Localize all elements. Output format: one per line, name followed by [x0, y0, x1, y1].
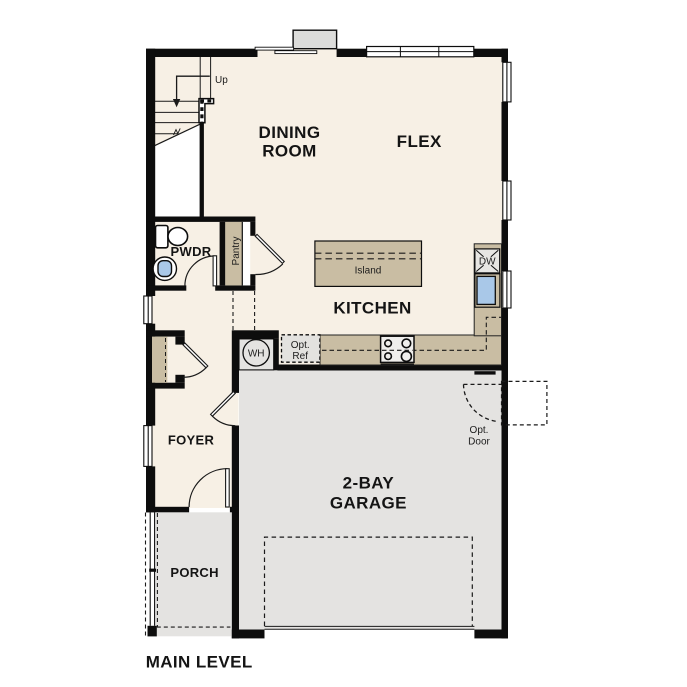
svg-text:GARAGE: GARAGE: [330, 493, 407, 512]
svg-text:Opt.: Opt.: [470, 425, 489, 436]
svg-text:Opt.: Opt.: [291, 340, 310, 351]
svg-text:Up: Up: [215, 75, 228, 86]
svg-text:Door: Door: [468, 437, 490, 448]
svg-text:ROOM: ROOM: [262, 141, 316, 160]
svg-text:WH: WH: [248, 348, 265, 359]
svg-text:PORCH: PORCH: [170, 565, 218, 580]
svg-text:2-BAY: 2-BAY: [343, 474, 395, 493]
svg-text:KITCHEN: KITCHEN: [333, 299, 411, 318]
svg-text:DINING: DINING: [259, 123, 321, 142]
svg-text:FOYER: FOYER: [168, 433, 215, 448]
svg-text:FLEX: FLEX: [397, 132, 442, 151]
svg-text:Ref: Ref: [292, 351, 308, 362]
svg-text:Pantry: Pantry: [231, 237, 242, 266]
svg-text:DW: DW: [479, 257, 496, 268]
svg-text:MAIN LEVEL: MAIN LEVEL: [146, 653, 253, 672]
svg-text:PWDR: PWDR: [171, 244, 212, 259]
svg-text:Island: Island: [355, 266, 382, 277]
